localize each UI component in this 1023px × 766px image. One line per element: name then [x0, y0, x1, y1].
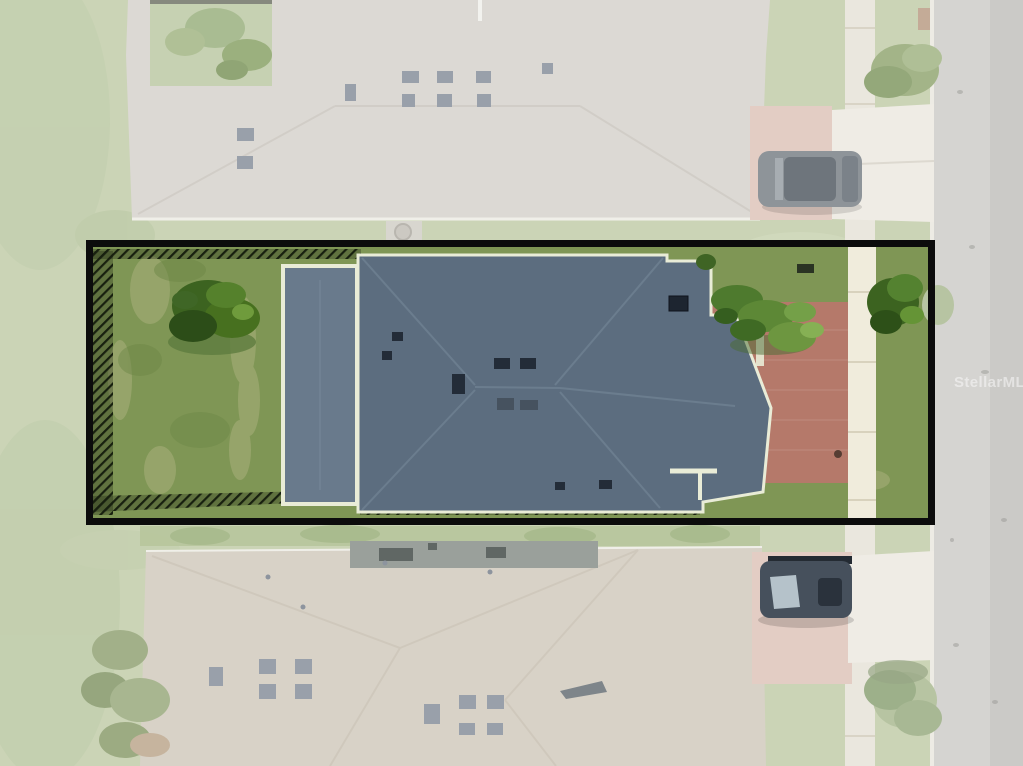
sidewalk-vivid: [848, 246, 876, 520]
bottom-roof: [140, 547, 766, 766]
garage-roof: [283, 266, 357, 504]
property-lot: [92, 246, 954, 520]
roof-skylight: [669, 296, 688, 311]
top-garden-patch: [150, 0, 272, 86]
aerial-property-photo: StellarMLS: [0, 0, 1023, 766]
aerial-scene: [0, 0, 1023, 766]
driveway-apron-bottom: [848, 551, 934, 663]
drain-cap: [834, 450, 842, 458]
neighbor-house-bottom: [140, 541, 766, 766]
suv-vehicle: [758, 151, 862, 215]
main-house-roof: [358, 255, 771, 512]
car-vehicle: [758, 556, 854, 628]
top-driveway: [750, 104, 934, 222]
street: [930, 0, 1023, 766]
mailbox: [918, 8, 930, 30]
lawn-grate: [797, 264, 814, 273]
flag-pole: [478, 0, 482, 21]
ac-unit-pad: [386, 221, 422, 242]
neighbor-house-top: [126, 0, 770, 242]
